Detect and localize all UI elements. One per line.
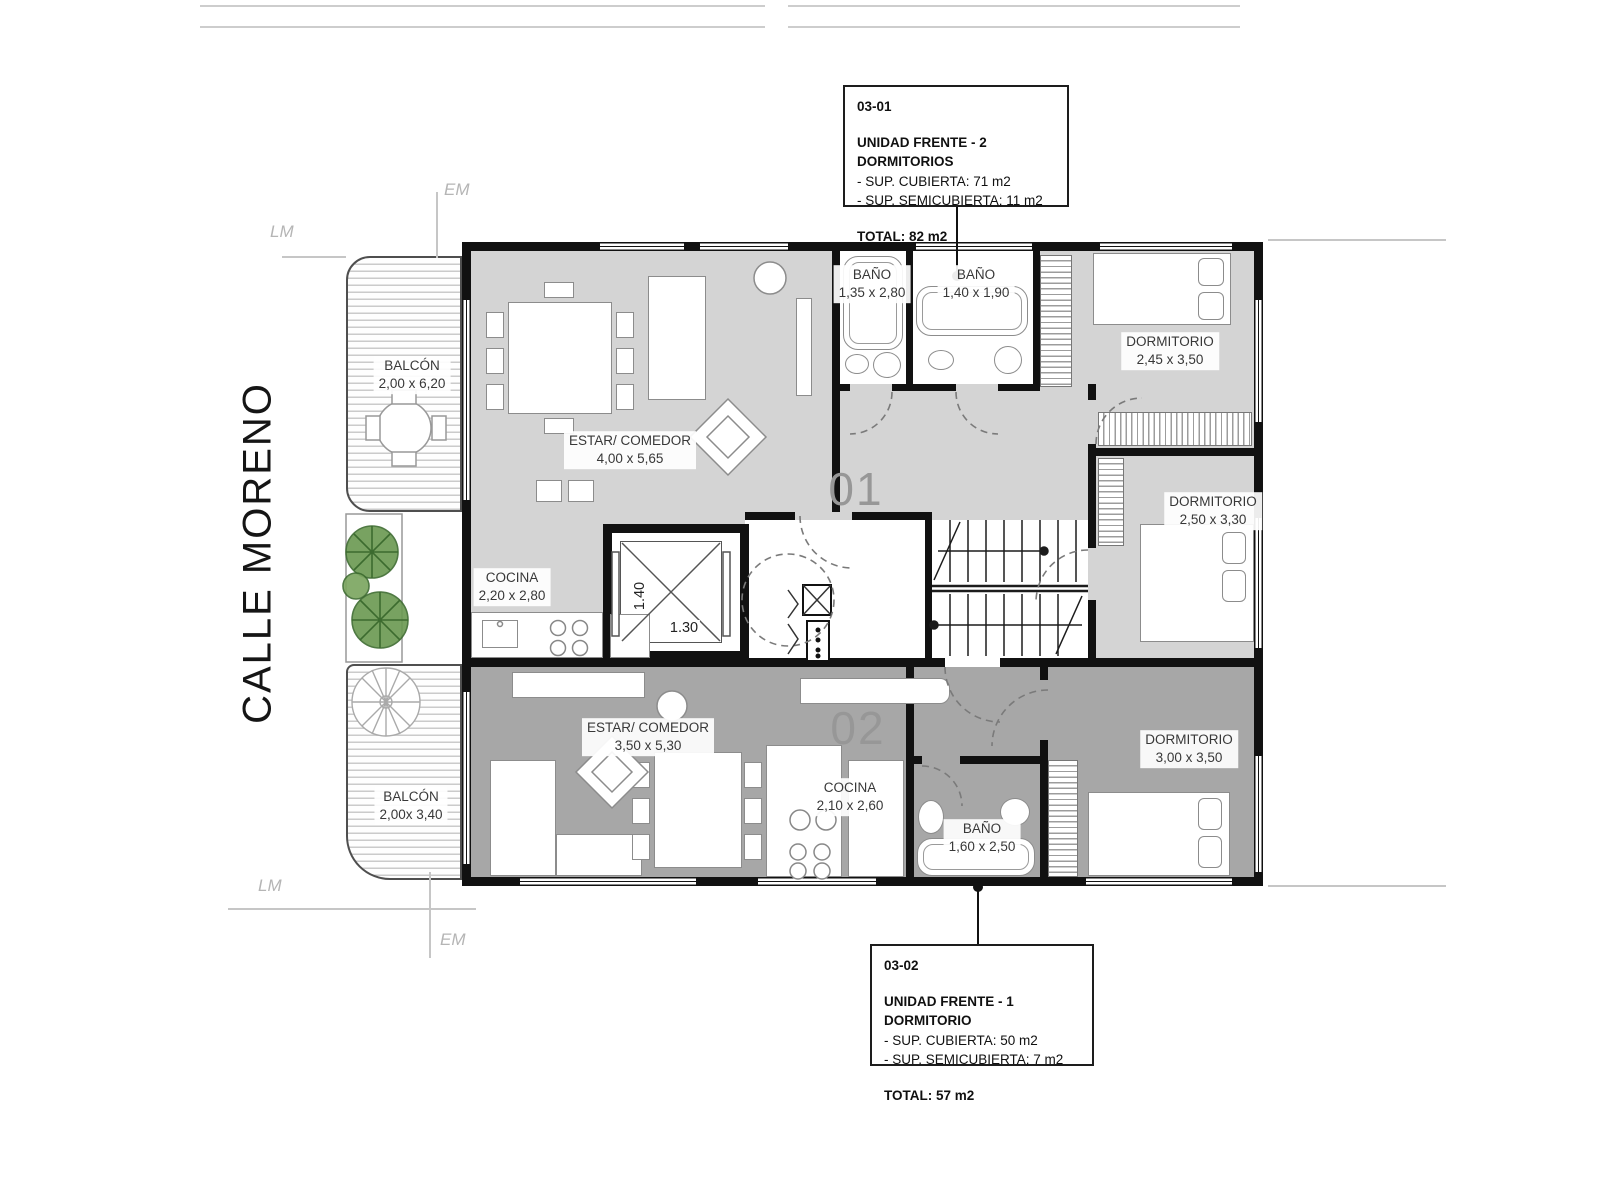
window — [758, 877, 876, 886]
room-dims: 2,45 x 3,50 — [1126, 351, 1214, 369]
room-name: DORMITORIO — [1145, 731, 1233, 749]
toilet — [873, 352, 901, 378]
info-box-unit-03-01: 03-01 UNIDAD FRENTE - 2 DORMITORIOS - SU… — [843, 85, 1069, 207]
window — [1086, 877, 1232, 886]
elevator-depth-label: 1.30 — [668, 620, 700, 636]
planter — [346, 514, 402, 662]
unit-area-line: - SUP. CUBIERTA: 71 m2 — [857, 172, 1055, 192]
top-deco-line — [788, 26, 1240, 28]
window — [520, 877, 696, 886]
elevator-width-label: 1.40 — [632, 580, 648, 612]
room-dims: 2,20 x 2,80 — [479, 587, 546, 605]
em-line-bottom — [429, 872, 431, 958]
lm-line-right-top — [1268, 239, 1446, 241]
dining-chair — [632, 762, 650, 788]
lm-line-bottom — [228, 908, 476, 910]
dining-chair — [616, 312, 634, 338]
service-duct-box — [806, 620, 830, 662]
unit-number-02: 02 — [830, 701, 885, 755]
pouf — [536, 480, 562, 502]
unit-code: 03-01 — [857, 97, 1055, 117]
lm-line-top — [282, 256, 346, 258]
dining-chair — [744, 762, 762, 788]
wall — [892, 384, 956, 391]
dining-chair — [486, 312, 504, 338]
room-name: BALCÓN — [379, 357, 446, 375]
unit-number-01: 01 — [828, 462, 883, 516]
room-label-bano-3: BAÑO 1,60 x 2,50 — [944, 819, 1021, 857]
wall — [745, 512, 795, 520]
em-label-bottom: EM — [440, 930, 466, 950]
wall — [1040, 740, 1048, 877]
room-label-cocina-01: COCINA 2,20 x 2,80 — [474, 568, 551, 606]
sofa — [648, 276, 706, 400]
hall-floor — [745, 520, 1088, 658]
wardrobe — [1098, 458, 1124, 546]
pillow — [1222, 570, 1246, 602]
room-name: BALCÓN — [379, 788, 442, 806]
fridge — [610, 614, 650, 658]
balcony-door — [462, 692, 471, 864]
street-name-label: CALLE MORENO — [236, 382, 281, 724]
room-label-balcon-lower: BALCÓN 2,00x 3,40 — [374, 787, 447, 825]
room-label-dormitorio-1: DORMITORIO 2,45 x 3,50 — [1121, 332, 1219, 370]
dining-chair — [616, 384, 634, 410]
room-label-balcon-upper: BALCÓN 2,00 x 6,20 — [374, 356, 451, 394]
bathroom-sink — [928, 350, 954, 370]
dining-table — [508, 302, 612, 414]
dining-chair — [544, 282, 574, 298]
window — [1254, 518, 1263, 648]
wall — [832, 384, 850, 391]
room-dims: 3,50 x 5,30 — [587, 737, 709, 755]
room-label-bano-1: BAÑO 1,35 x 2,80 — [834, 265, 911, 303]
unit-area-line: - SUP. CUBIERTA: 50 m2 — [884, 1031, 1080, 1051]
top-deco-line — [200, 5, 765, 7]
room-dims: 2,00x 3,40 — [379, 806, 442, 824]
unit-code: 03-02 — [884, 956, 1080, 976]
pillow — [1198, 798, 1222, 830]
room-dims: 2,10 x 2,60 — [817, 797, 884, 815]
unit-total: TOTAL: 57 m2 — [884, 1086, 1080, 1106]
room-name: BAÑO — [943, 266, 1010, 284]
dining-chair — [632, 798, 650, 824]
dining-chair — [744, 834, 762, 860]
unit-title: UNIDAD FRENTE - 2 DORMITORIOS — [857, 133, 1055, 172]
wall — [1088, 600, 1096, 658]
info-box-unit-03-02: 03-02 UNIDAD FRENTE - 1 DORMITORIO - SUP… — [870, 944, 1094, 1066]
room-name: COCINA — [817, 779, 884, 797]
unit-area-line: - SUP. SEMICUBIERTA: 11 m2 — [857, 191, 1055, 211]
room-dims: 1,40 x 1,90 — [943, 284, 1010, 302]
room-label-estar-comedor-01: ESTAR/ COMEDOR 4,00 x 5,65 — [564, 431, 696, 469]
em-label-top: EM — [444, 180, 470, 200]
wall — [1033, 251, 1040, 391]
room-dims: 1,60 x 2,50 — [949, 838, 1016, 856]
room-label-dormitorio-2: DORMITORIO 2,50 x 3,30 — [1164, 492, 1262, 530]
bathroom-sink — [845, 354, 869, 374]
pillow — [1222, 532, 1246, 564]
room-name: DORMITORIO — [1169, 493, 1257, 511]
toilet — [994, 346, 1022, 374]
plant-icon — [343, 526, 408, 648]
bathroom-sink — [918, 800, 944, 834]
window — [1100, 242, 1232, 251]
room-dims: 3,00 x 3,50 — [1145, 749, 1233, 767]
unit-total: TOTAL: 82 m2 — [857, 227, 1055, 247]
tv-console — [512, 672, 645, 698]
window — [600, 242, 684, 251]
room-label-dormitorio-3: DORMITORIO 3,00 x 3,50 — [1140, 730, 1238, 768]
wall — [1040, 667, 1048, 680]
room-dims: 2,00 x 6,20 — [379, 375, 446, 393]
dining-chair — [632, 834, 650, 860]
wardrobe — [1098, 412, 1252, 446]
dining-table — [654, 752, 742, 868]
sofa — [556, 834, 642, 876]
lm-line-right-bottom — [1268, 885, 1446, 887]
window — [1254, 756, 1263, 872]
unit-area-line: - SUP. SEMICUBIERTA: 7 m2 — [884, 1050, 1080, 1070]
room-name: DORMITORIO — [1126, 333, 1214, 351]
room-dims: 2,50 x 3,30 — [1169, 511, 1257, 529]
room-label-estar-comedor-02: ESTAR/ COMEDOR 3,50 x 5,30 — [582, 718, 714, 756]
window — [1254, 300, 1263, 422]
room-label-bano-2: BAÑO 1,40 x 1,90 — [938, 265, 1015, 303]
room-name: COCINA — [479, 569, 546, 587]
balcony-lower — [346, 664, 462, 880]
wardrobe — [1048, 760, 1078, 877]
room-name: ESTAR/ COMEDOR — [587, 719, 709, 737]
wall — [1088, 444, 1096, 548]
lm-label-bottom: LM — [258, 876, 282, 896]
em-line-top — [436, 192, 438, 258]
room-name: BAÑO — [839, 266, 906, 284]
top-deco-line — [788, 5, 1240, 7]
pouf — [568, 480, 594, 502]
kitchen-sink — [482, 620, 518, 648]
dining-chair — [744, 798, 762, 824]
room-dims: 4,00 x 5,65 — [569, 450, 691, 468]
wall — [925, 512, 932, 658]
top-deco-line — [200, 26, 765, 28]
window — [700, 242, 788, 251]
dining-chair — [486, 384, 504, 410]
unit-title: UNIDAD FRENTE - 1 DORMITORIO — [884, 992, 1080, 1031]
wall — [1000, 658, 1254, 667]
room-name: BAÑO — [949, 820, 1016, 838]
room-dims: 1,35 x 2,80 — [839, 284, 906, 302]
room-label-cocina-02: COCINA 2,10 x 2,60 — [812, 778, 889, 816]
pillow — [1198, 292, 1224, 320]
pillow — [1198, 836, 1222, 868]
lm-label-top: LM — [270, 222, 294, 242]
wardrobe — [1040, 255, 1072, 387]
wall — [960, 756, 1048, 764]
wall — [1095, 448, 1254, 456]
service-shaft-box — [802, 584, 832, 616]
pillow — [1198, 258, 1224, 286]
dining-chair — [616, 348, 634, 374]
sofa — [490, 760, 556, 876]
tv-console — [796, 298, 812, 396]
balcony-door — [462, 300, 471, 500]
room-name: ESTAR/ COMEDOR — [569, 432, 691, 450]
wall — [1088, 384, 1096, 400]
dining-chair — [486, 348, 504, 374]
wall — [914, 756, 922, 764]
